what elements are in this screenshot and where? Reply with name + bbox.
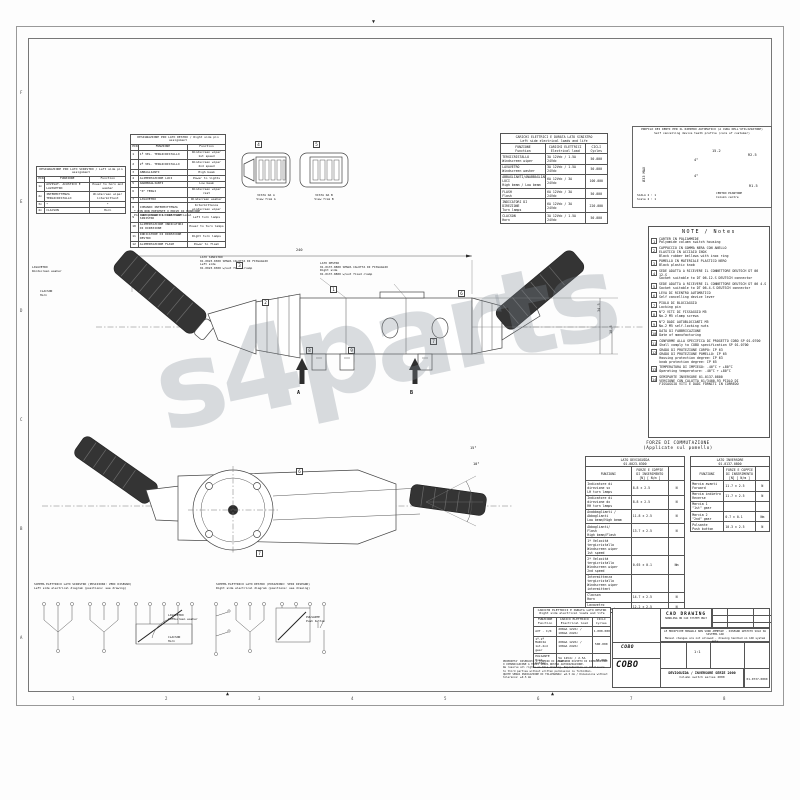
- note-item: 5SEDE ADATTA A RICEVERE IL CONNETTORE DE…: [651, 283, 767, 291]
- table-cell: Indicatore di direzione sx LH turn lamps: [586, 481, 632, 495]
- notes-list: 1CARTER IN POLIAMMIDEPolyamide column sw…: [651, 238, 767, 388]
- teeth-profile-title: PROFILO DEI DENTI PER IL RIENTRO AUTOMAT…: [634, 128, 770, 135]
- table-cell: CLACSON Horn: [501, 213, 546, 223]
- table-cell: 1ª Velocità tergicristallo Windscreen wi…: [586, 538, 632, 556]
- table-cell: 500.000: [592, 637, 611, 654]
- table-cell: 1: [131, 150, 139, 160]
- schematic-title-right: SCHEMA ELETTRICO LATO DESTRO (POSIZIONI:…: [216, 583, 376, 590]
- table-row: 4xCLACSONHorn: [37, 207, 126, 213]
- zone-letter: C: [20, 417, 22, 422]
- schematic-horn-label: CLACSON Horn: [168, 636, 222, 643]
- note-text: SEMIPARTE INVERSORE 01-0137-0800 VERSION…: [659, 376, 738, 388]
- dim-height-1: 34.5: [597, 303, 601, 312]
- fine-print-notes: PROPRIETA' RISERVATA A TERMINI DI LEGGE …: [503, 660, 609, 679]
- table-cell: 1ª-2ª MARCIA 1st-2nd gear: [534, 637, 557, 654]
- zone-number: 3: [258, 696, 260, 701]
- note-number: 7: [651, 302, 657, 308]
- table-cell: 220.000: [585, 199, 607, 213]
- note-item: 12GRADO DI PROTEZIONE CORPO: IP 63 GRADO…: [651, 349, 767, 365]
- table-row: Indicatore di direzione dx RH turn lamps…: [586, 495, 685, 509]
- note-text: LEVA DI RIENTRO AUTOMATICOSelf cancellin…: [659, 292, 715, 300]
- fold-mark-bottom-right: ▲: [551, 692, 554, 697]
- table-cell: Windscreen wiper rest: [187, 187, 225, 197]
- table-cell: Power to flash: [187, 242, 225, 248]
- forces-title-line1: FORZE DI COMMUTAZIONE: [646, 440, 709, 445]
- table-row: 10ALIMENTAZIONE INDICATORI DI DIREZIONEP…: [131, 222, 226, 232]
- table-header-cell: LATO DEVIOGUIDA 01.0023.0300: [586, 457, 685, 467]
- table-row: INDICATORI DI DIREZIONE Turn lamps6A 12V…: [501, 199, 608, 213]
- note-number: 2: [651, 247, 657, 253]
- table-cell: Clacson Horn: [586, 592, 632, 602]
- cad-drawing-stamp: CAD DRAWING HANDLING ON CAD SYSTEM ONLY: [660, 608, 712, 628]
- table-cell: [631, 538, 669, 556]
- note-number: 4: [651, 270, 657, 276]
- note-text: SEDE ADATTA A RICEVERE IL CONNETTORE DEU…: [659, 283, 766, 291]
- note-text: PIOLO DI BLOCCAGGIOLocking pin: [659, 302, 697, 310]
- note-number: 13: [651, 366, 657, 372]
- table-cell: Horn: [90, 207, 126, 213]
- table-cell: Right turn lamps: [187, 232, 225, 242]
- table-header-cell: FUNZIONI: [586, 467, 632, 481]
- table-cell: Nm: [669, 556, 685, 574]
- bottom-right-grip: [409, 484, 487, 516]
- note-text: TEMPERATURA DI IMPIEGO: -40°C ÷ +80°COpe…: [659, 366, 732, 374]
- table-header-cell: FUNZIONI: [691, 467, 724, 481]
- table-row: Clacson Horn14.7 ± 2.5N: [586, 592, 685, 602]
- forces-right-table: LATO INVERSORE 01.0137.0800FUNZIONIFORZE…: [690, 456, 770, 532]
- drawing-number-cell: 01-0737-0800: [744, 668, 770, 688]
- table-header-cell: CICLI Cycles: [592, 617, 611, 627]
- table-cell: 8.8 ± 2.5: [631, 481, 669, 495]
- section-arrow-a-label: A: [297, 390, 300, 396]
- note-number: 14: [651, 376, 657, 382]
- table-cell: 1x: [37, 182, 45, 192]
- zone-number: 7: [630, 696, 632, 701]
- table-cell: 2x: [37, 192, 45, 202]
- horn-function-label: CLACSON Horn: [40, 290, 100, 297]
- profile-dim-width: 15.2: [712, 149, 721, 153]
- table-row: 12ALIMENTAZIONE FLASHPower to flash: [131, 242, 226, 248]
- note-number: 9: [651, 321, 657, 327]
- table-cell: AVVISAT. ACUSTICO E LAVAVETRO: [45, 182, 90, 192]
- table-header-cell: CARICO ELETTRICO Electrical load: [557, 617, 592, 627]
- table-cell: 3A 12Vdc / 1.5A 24Vdc: [545, 164, 585, 174]
- logo-divider-2: [612, 658, 660, 659]
- table-header-cell: CARICHI ELETTRICI Electrical load: [545, 144, 585, 154]
- note-item: 3POMELLO IN MATERIALE PLASTICO NEROBlack…: [651, 260, 767, 268]
- table-row: TERGICRISTALLO Windscreen wiper3A 12Vdc …: [501, 154, 608, 164]
- table-cell: N: [669, 509, 685, 523]
- balloon-6: 6: [458, 290, 465, 297]
- table-cell: Windscreen wiper 1st speed: [187, 150, 225, 160]
- table-cell: [724, 501, 756, 511]
- revision-grid: [712, 608, 770, 628]
- note-text: N°2 VITI DI FISSAGGIO M5No.2 M5 clamp sc…: [659, 311, 707, 319]
- table-cell: N: [669, 523, 685, 537]
- table-cell: 6A 12Vdc / 3A 24Vdc: [545, 188, 585, 198]
- table-cell: FLASH Flash: [501, 188, 546, 198]
- balloon-9: 9: [348, 347, 355, 354]
- profile-angle-top: 4°: [694, 158, 698, 162]
- balloon-2: 2: [262, 299, 269, 306]
- balloon-3: 3: [236, 262, 243, 269]
- table-cell: AVT - I/R: [534, 627, 557, 637]
- table-cell: 14.7 ± 2.5: [631, 592, 669, 602]
- cobo-logo-small: COBO: [621, 645, 634, 650]
- note-item: 4SEDE ADATTA A RICEVERE IL CONNETTORE DE…: [651, 270, 767, 282]
- table-cell: Intermittenza tergicristallo Windscreen …: [586, 574, 632, 592]
- table-row: 1ª Velocità tergicristallo Windscreen wi…: [586, 538, 685, 556]
- note-item: 7PIOLO DI BLOCCAGGIOLocking pin: [651, 302, 767, 310]
- table-header-cell: FORZE E COPPIE DI INSERIMENTO [N] [ N/m …: [631, 467, 669, 481]
- note-text: N°2 DADI AUTOBLOCCANTI M5No.2 M5 self-lo…: [659, 321, 709, 329]
- table-header-cell: [755, 467, 769, 481]
- table-row: 11ª VEL. TERGICRISTALLOWindscreen wiper …: [131, 150, 226, 160]
- table-cell: 50.000: [585, 188, 607, 198]
- table-cell: Power to turn lamps: [187, 222, 225, 232]
- table-cell: 4x: [37, 207, 45, 213]
- pin-footnote: * PIN NON PRESENTE O PRIVO DI FUNZIONE P…: [134, 210, 244, 217]
- table-cell: 11.7 ± 2.5: [724, 481, 756, 491]
- right-loads-table: CARICHI ELETTRICI E DURATA LATO DESTRO R…: [533, 607, 611, 668]
- table-row: 22ª VEL. TERGICRISTALLOWindscreen wiper …: [131, 160, 226, 170]
- logo-divider-1: [612, 642, 660, 643]
- zone-number: 8: [723, 696, 725, 701]
- schematic-title-left: SCHEMA ELETTRICO LATO SINISTRO (POSIZION…: [34, 583, 194, 590]
- table-cell: "0" TERGI: [138, 187, 187, 197]
- table-cell: 100.000: [585, 174, 607, 188]
- table-cell: TERGICRISTALLO Windscreen wiper: [501, 154, 546, 164]
- scale-value: 1:1: [694, 650, 701, 654]
- forces-left-table: LATO DEVIOGUIDA 01.0023.0300FUNZIONIFORZ…: [585, 456, 685, 613]
- electrical-schematic-drawing: [32, 594, 362, 666]
- table-row: 6"0" TERGIWindscreen wiper rest: [131, 187, 226, 197]
- bottom-left-grip: [72, 434, 159, 505]
- dim-height-2: 18.5: [609, 325, 613, 334]
- table-header-cell: FUNZIONE Function: [501, 144, 546, 154]
- table-cell: [669, 574, 685, 592]
- table-cell: ABBAGLIANTI/ANABBAGLIANTI LUCI High beam…: [501, 174, 546, 188]
- note-item: 9N°2 DADI AUTOBLOCCANTI M5No.2 M5 self-l…: [651, 321, 767, 329]
- table-row: 2ª Velocità tergicristallo Windscreen wi…: [586, 556, 685, 574]
- table-header-cell: CARICHI ELETTRICI E DURATA LATO SINISTRO…: [501, 134, 608, 144]
- note-item: 11CONFORME ALLA SPECIFICA DI PROGETTO CO…: [651, 340, 767, 348]
- table-cell: Power to horn and washer: [90, 182, 126, 192]
- profile-dim-diameter: Ø33 MAX: [642, 167, 646, 182]
- drawing-title-en: Column switch series 2000: [661, 675, 743, 679]
- fold-mark-bottom-left: ▲: [226, 692, 229, 697]
- table-cell: 200mA 12Vdc / 100mA 24Vdc: [557, 637, 592, 654]
- table-cell: Marcia avanti Forward: [691, 481, 724, 491]
- table-cell: Anabbaglianti / Abbaglianti Low beam/Hig…: [586, 509, 632, 523]
- balloon-1: 1: [330, 286, 337, 293]
- zone-letter: A: [20, 635, 22, 640]
- table-cell: 11.8 ± 2.5: [631, 509, 669, 523]
- zone-number: 6: [537, 696, 539, 701]
- bottom-angle-2: 10°: [473, 462, 480, 466]
- table-row: FLASH Flash6A 12Vdc / 3A 24Vdc50.000: [501, 188, 608, 198]
- note-text: SEDE ADATTA A RICEVERE IL CONNETTORE DEU…: [659, 270, 767, 282]
- washer-function-label: LAVAVETRO Windscreen washer: [32, 266, 92, 273]
- notes-panel: NOTE / Notes 1CARTER IN POLIAMMIDEPolyam…: [648, 226, 770, 438]
- table-row: Intermittenza tergicristallo Windscreen …: [586, 574, 685, 592]
- table-cell: 0.7 ± 0.1: [724, 511, 756, 521]
- table-cell: 10.3 ± 2.5: [724, 522, 756, 532]
- table-row: 1ª-2ª MARCIA 1st-2nd gear200mA 12Vdc / 1…: [534, 637, 611, 654]
- table-cell: 11.7 ± 2.5: [724, 491, 756, 501]
- schematic-button-label: PULSANTE Push button: [306, 616, 350, 623]
- note-item: 10DATA DI FABBRICAZIONEDate of manufactu…: [651, 330, 767, 338]
- table-cell: Windscreen wiper intermittent: [90, 192, 126, 202]
- cad-notice: LE MODIFICHE MANUALI NON SONO AMMESSE - …: [660, 628, 770, 642]
- table-cell: Marcia 1 "1st" gear: [691, 501, 724, 511]
- note-text: CARTER IN POLIAMMIDEPolyamide column swi…: [659, 238, 721, 246]
- table-cell: 8.8 ± 2.5: [631, 495, 669, 509]
- table-cell: 10: [131, 222, 139, 232]
- table-cell: 2: [131, 160, 139, 170]
- zone-number: 1: [72, 696, 74, 701]
- note-item: 14SEMIPARTE INVERSORE 01-0137-0800 VERSI…: [651, 376, 767, 388]
- note-item: 8N°2 VITI DI FISSAGGIO M5No.2 M5 clamp s…: [651, 311, 767, 319]
- note-number: 10: [651, 330, 657, 336]
- table-cell: ALIMENTAZIONE FLASH: [138, 242, 187, 248]
- forces-title-line2: (Applicate sul pomello): [643, 445, 713, 450]
- note-item: 1CARTER IN POLIAMMIDEPolyamide column sw…: [651, 238, 767, 246]
- note-item: 2CAPPUCCIO IN GOMMA NERA CON ANELLO ELAS…: [651, 247, 767, 259]
- table-row: CLACSON Horn3A 12Vdc / 1.5A 24Vdc50.000: [501, 213, 608, 223]
- left-pin-assignment-table: DESIGNAZIONE PIN LATO SINISTRO / Left si…: [36, 166, 126, 214]
- table-header-cell: FUNZIONE Function: [534, 617, 557, 627]
- table-cell: 6: [131, 187, 139, 197]
- profile-radius-outer: R2.5: [748, 153, 757, 157]
- table-cell: Abbaglianti/ Flash High beam/Flash: [586, 523, 632, 537]
- zone-letter: E: [20, 199, 22, 204]
- note-number: 8: [651, 311, 657, 317]
- table-cell: 200mA 12Vdc / 100mA 24Vdc: [557, 627, 592, 637]
- note-text: POMELLO IN MATERIALE PLASTICO NEROBlack …: [659, 260, 727, 268]
- table-cell: LAVAVETRO Windscreen washer: [501, 164, 546, 174]
- balloon-5: 5: [313, 141, 320, 148]
- table-row: LAVAVETRO Windscreen washer3A 12Vdc / 1.…: [501, 164, 608, 174]
- profile-angle-bottom: 4°: [694, 174, 698, 178]
- table-cell: 50.000: [585, 154, 607, 164]
- table-header-cell: CICLI Cycles: [585, 144, 607, 154]
- note-number: 5: [651, 283, 657, 289]
- view-a-label: VISTA DA A View from A: [243, 194, 289, 201]
- table-row: Marcia avanti Forward11.7 ± 2.5N: [691, 481, 770, 491]
- connector-view-a-drawing: [240, 148, 292, 192]
- table-cell: N: [755, 491, 769, 501]
- main-assembly-bottom-view: [28, 418, 528, 580]
- table-cell: ALIMENTAZIONE INDICATORI DI DIREZIONE: [138, 222, 187, 232]
- table-cell: 50.000: [585, 164, 607, 174]
- note-number: 1: [651, 238, 657, 244]
- left-side-part-label: LATO SINISTRO 01.0023.0300 SENZA CALOTTA…: [200, 256, 296, 270]
- notes-title: NOTE / Notes: [651, 229, 767, 235]
- table-row: 2xINTERMITTENZA TERGICRISTALLOWindscreen…: [37, 192, 126, 202]
- dim-overall-length: 240: [296, 248, 303, 252]
- zone-letter: D: [20, 308, 22, 313]
- cobo-logo-big: COBO: [616, 660, 638, 670]
- table-row: Marcia 2 "2nd" gear0.7 ± 0.1Nm: [691, 511, 770, 521]
- balloon-7-bottom: 7: [256, 550, 263, 557]
- table-row: ABBAGLIANTI/ANABBAGLIANTI LUCI High beam…: [501, 174, 608, 188]
- note-item: 13TEMPERATURA DI IMPIEGO: -40°C ÷ +80°CO…: [651, 366, 767, 374]
- table-row: Anabbaglianti / Abbaglianti Low beam/Hig…: [586, 509, 685, 523]
- table-cell: 11: [131, 232, 139, 242]
- note-number: 3: [651, 260, 657, 266]
- table-cell: 6A 12Vdc / 3A 24Vdc: [545, 199, 585, 213]
- note-item: 6LEVA DI RIENTRO AUTOMATICOSelf cancelli…: [651, 292, 767, 300]
- note-number: 11: [651, 340, 657, 346]
- table-cell: INTERMITTENZA TERGICRISTALLO: [45, 192, 90, 202]
- profile-center-label: CENTRO PIANTONE Column centre: [716, 192, 768, 199]
- mid-vline-2: [710, 642, 711, 668]
- view-b-label: VISTA DA B View from B: [301, 194, 347, 201]
- section-arrow-b-label: B: [410, 390, 413, 396]
- fold-mark-top: ▼: [372, 20, 375, 25]
- note-text: CAPPUCCIO IN GOMMA NERA CON ANELLO ELAST…: [659, 247, 728, 259]
- table-row: Abbaglianti/ Flash High beam/Flash13.7 ±…: [586, 523, 685, 537]
- table-cell: Marcia indietro Reverse: [691, 491, 724, 501]
- table-cell: [669, 538, 685, 556]
- table-cell: 3A 12Vdc / 1.5A 24Vdc: [545, 154, 585, 164]
- table-row: Indicatore di direzione sx LH turn lamps…: [586, 481, 685, 495]
- table-cell: N: [755, 522, 769, 532]
- table-header-cell: CARICHI ELETTRICI E DURATA LATO DESTRO R…: [534, 608, 611, 618]
- table-cell: CLACSON: [45, 207, 90, 213]
- table-header-cell: DESIGNAZIONE PIN LATO SINISTRO / Left si…: [37, 167, 126, 177]
- note-text: GRADO DI PROTEZIONE CORPO: IP 63 GRADO D…: [659, 349, 727, 365]
- table-cell: Marcia 2 "2nd" gear: [691, 511, 724, 521]
- table-cell: 2ª VEL. TERGICRISTALLO: [138, 160, 187, 170]
- table-header-cell: LATO INVERSORE 01.0137.0800: [691, 457, 770, 467]
- table-row: AVT - I/R200mA 12Vdc / 100mA 24Vdc1.000.…: [534, 627, 611, 637]
- balloon-7: 7: [430, 338, 437, 345]
- table-row: 11INDICATORE DI DIREZIONE DESTRORight tu…: [131, 232, 226, 242]
- note-text: DATA DI FABBRICAZIONEDate of manufacturi…: [659, 330, 701, 338]
- table-cell: 13.7 ± 2.5: [631, 523, 669, 537]
- table-cell: 1ª VEL. TERGICRISTALLO: [138, 150, 187, 160]
- table-cell: 0.65 ± 0.1: [631, 556, 669, 574]
- table-header-cell: DESIGNAZIONE PIN LATO DESTRO / Right sid…: [131, 135, 226, 145]
- cad-drawing-subtext: HANDLING ON CAD SYSTEM ONLY: [661, 617, 711, 620]
- table-cell: 12: [131, 242, 139, 248]
- bottom-angle-1: 15°: [470, 446, 477, 450]
- table-cell: N: [755, 481, 769, 491]
- balloon-8: 8: [306, 347, 313, 354]
- balloon-4: 4: [255, 141, 262, 148]
- table-cell: 6A 12Vdc / 3A 24Vdc: [545, 174, 585, 188]
- zone-letter: F: [20, 90, 22, 95]
- table-cell: N: [669, 481, 685, 495]
- profile-scale-label: SCALA 2 : 1 Scale 2 : 1: [637, 194, 677, 201]
- forces-title: FORZE DI COMMUTAZIONE (Applicate sul pom…: [585, 440, 771, 451]
- mid-vline-1: [686, 642, 687, 668]
- zone-number: 2: [165, 696, 167, 701]
- table-cell: N: [669, 592, 685, 602]
- mid-divider: [660, 642, 770, 643]
- left-loads-table: CARICHI ELETTRICI E DURATA LATO SINISTRO…: [500, 133, 608, 224]
- table-cell: INDICATORE DI DIREZIONE DESTRO: [138, 232, 187, 242]
- table-cell: 1.000.000: [592, 627, 611, 637]
- table-cell: 50.000: [585, 213, 607, 223]
- table-row: Marcia 1 "1st" gear: [691, 501, 770, 511]
- schematic-washer-label: LAVAVETRO Windscreen washer: [168, 614, 222, 621]
- table-header-cell: FORZE E COPPIE DI INSERIMENTO [N] [ N/m …: [724, 467, 756, 481]
- right-lever-grip: [493, 248, 586, 332]
- table-cell: Nm: [755, 511, 769, 521]
- note-number: 6: [651, 292, 657, 298]
- note-number: 12: [651, 349, 657, 355]
- table-cell: N: [669, 495, 685, 509]
- table-row: 1xAVVISAT. ACUSTICO E LAVAVETROPower to …: [37, 182, 126, 192]
- right-pin-assignment-table: DESIGNAZIONE PIN LATO DESTRO / Right sid…: [130, 134, 226, 248]
- balloon-6-bottom: 6: [296, 468, 303, 475]
- zone-number: 5: [444, 696, 446, 701]
- table-cell: 3A 12Vdc / 1.5A 24Vdc: [545, 213, 585, 223]
- table-row: Pulsante Push button10.3 ± 2.5N: [691, 522, 770, 532]
- table-cell: INDICATORI DI DIREZIONE Turn lamps: [501, 199, 546, 213]
- table-cell: 2ª Velocità tergicristallo Windscreen wi…: [586, 556, 632, 574]
- table-cell: Windscreen wiper 2nd speed: [187, 160, 225, 170]
- table-cell: Indicatore di direzione dx RH turn lamps: [586, 495, 632, 509]
- table-cell: [755, 501, 769, 511]
- table-cell: Pulsante Push button: [691, 522, 724, 532]
- profile-radius-inner: R1.5: [749, 184, 758, 188]
- note-text: CONFORME ALLA SPECIFICA DI PROGETTO COBO…: [659, 340, 760, 348]
- table-row: Marcia indietro Reverse11.7 ± 2.5N: [691, 491, 770, 501]
- connector-view-b-drawing: [298, 148, 350, 192]
- table-header-cell: [669, 467, 685, 481]
- zone-letter: B: [20, 526, 22, 531]
- drawing-title-cell: DEVIOGUIDA / INVERSORE SERIE 2000 Column…: [660, 668, 744, 688]
- right-side-part-label: LATO DESTRO 01.0137.0800 SENZA CALOTTA D…: [320, 262, 416, 276]
- drawing-sheet: ▼ ▲ ▲ 1 2 3 4 5 6 7 8 F E D C B A s4part…: [0, 0, 800, 800]
- table-cell: [631, 574, 669, 592]
- zone-number: 4: [351, 696, 353, 701]
